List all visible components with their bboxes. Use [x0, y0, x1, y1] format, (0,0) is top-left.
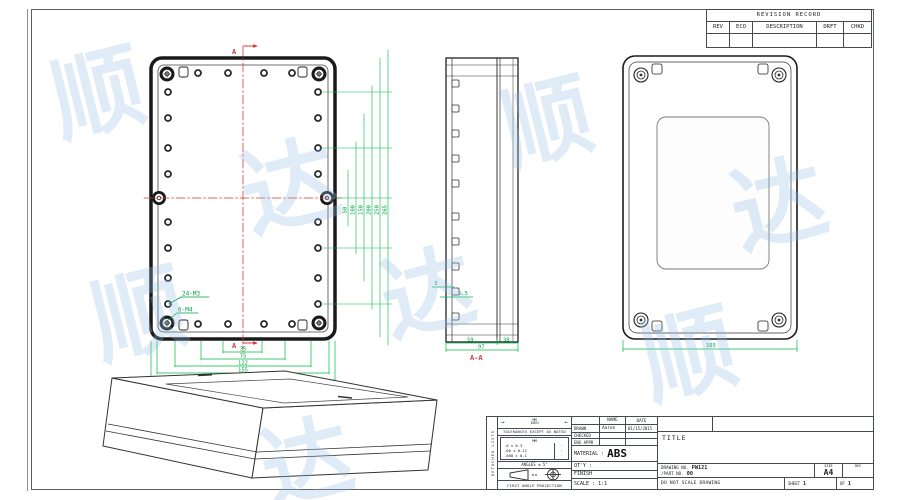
sheet-label: SHEET [788, 481, 800, 486]
front-view: A A 24-M3 6-M4 [144, 44, 392, 381]
back-recess-panel [657, 117, 769, 269]
checked-date [626, 433, 657, 439]
scale-label: SCALE : 1:1 [572, 479, 657, 489]
finish-label: FINISH [572, 471, 657, 480]
dim-arrow-right-icon: → [501, 419, 505, 426]
target-symbol-icon [544, 468, 562, 481]
title-block-top-strip [658, 417, 873, 432]
drawing-number-cell: DRAWING NO. PW121 /PART NO. 00 [658, 464, 815, 477]
drft-empty-cell [817, 34, 844, 47]
eng-appr-label: ENG APPR [572, 439, 600, 445]
tolerance-row-3: .000 ± 0.1 [501, 453, 554, 458]
projection-symbols [498, 469, 571, 481]
eng-appr-date [626, 439, 657, 445]
of-number: 1 [848, 481, 851, 487]
vdim-150: 150 [359, 205, 365, 215]
side-strip-label: DETACHED LISTS [490, 430, 495, 476]
tolerance-column: → MM INCH ← TOLERANCES EXCEPT AS NOTED M… [498, 417, 572, 489]
callout-6-m4-label: 6-M4 [178, 307, 193, 314]
side-section-view: 3 5.5 59 38 97 A-A [432, 58, 518, 362]
of-cell: OF 1 [837, 478, 873, 489]
revision-table-title: REVISION RECORD [707, 10, 871, 21]
title-column: TITLE DRAWING NO. PW121 /PART NO. 00 SIZ… [658, 417, 873, 489]
name-header: NAME [600, 417, 626, 424]
section-label-bottom: A [232, 342, 237, 350]
vdim-100: 100 [351, 205, 357, 215]
approval-blank-header [572, 417, 600, 424]
section-marker-top: A [232, 44, 258, 56]
approvals-column: NAME DATE DRAWN Aaron 01/15/2015 CHECKED… [572, 417, 658, 489]
back-view: 165 [623, 56, 797, 352]
material-value: ABS [607, 447, 627, 460]
do-not-scale-note: DO NOT SCALE DRAWING [658, 478, 785, 489]
eco-col-header: ECO [730, 22, 753, 33]
rev-label: REV [855, 464, 861, 468]
eco-empty-cell [730, 34, 753, 47]
part-no-label: /PART NO. [661, 471, 684, 477]
dim-arrow-left-icon: ← [564, 419, 568, 426]
of-label: OF [840, 481, 845, 486]
drft-col-header: DRFT [817, 22, 844, 33]
eng-appr-name [600, 439, 626, 445]
tolerance-note: TOLERANCES EXCEPT AS NOTED [498, 429, 571, 437]
top-strip-cell [658, 417, 713, 431]
vdim-265: 265 [383, 205, 389, 215]
drawn-label: DRAWN [572, 425, 600, 432]
title-block: DETACHED LISTS → MM INCH ← TOLERANCES EX… [486, 416, 874, 490]
dim-97: 97 [478, 345, 485, 351]
date-header: DATE [626, 417, 657, 424]
dim-35: 35 [240, 347, 247, 353]
material-label: MATERIAL : [574, 451, 604, 457]
rev-empty-cell [707, 34, 730, 47]
qty-label: QT'Y : [572, 462, 657, 471]
dim-5-5: 5.5 [458, 291, 468, 297]
checked-label: CHECKED [572, 433, 600, 439]
tolerance-table: MM .0 ± 0.3· .00 ± 0.12· .000 ± 0.1· [498, 436, 571, 461]
section-aa-label: A-A [470, 354, 483, 362]
back-width-dim: 165 [623, 340, 797, 352]
description-empty-cell [753, 34, 817, 47]
title-block-side-strip: DETACHED LISTS [487, 417, 498, 489]
sheet-cell: SHEET 1 [785, 478, 837, 489]
dim-122: 122 [238, 361, 248, 367]
drawn-date: 01/15/2015 [626, 425, 657, 432]
callout-24-m3-label: 24-M3 [182, 291, 200, 298]
dim-59: 59 [467, 338, 474, 344]
vdim-250: 250 [375, 205, 381, 215]
dim-75: 75 [240, 354, 247, 360]
vdim-50: 50 [343, 207, 349, 214]
dim-3: 3 [434, 281, 437, 287]
dim-38: 38 [503, 338, 510, 344]
drawing-sheet: A A 24-M3 6-M4 [0, 0, 900, 500]
units-secondary: INCH [530, 422, 538, 426]
title-label: TITLE [658, 432, 873, 465]
tolerance-mark-3: · [554, 453, 568, 458]
vdim-200: 200 [367, 205, 373, 215]
section-label-top: A [232, 48, 237, 56]
part-no-value: 00 [687, 471, 693, 477]
revision-table: REVISION RECORD REV ECO DESCRIPTION DRFT… [706, 9, 872, 48]
dim-165-back: 165 [706, 343, 716, 349]
rev-cell: REV [843, 464, 873, 477]
chkd-col-header: CHKD [844, 22, 871, 33]
checked-name [600, 433, 626, 439]
rev-col-header: REV [707, 22, 730, 33]
description-col-header: DESCRIPTION [753, 22, 817, 33]
sheet-number: 1 [803, 481, 806, 487]
drawn-name: Aaron [600, 425, 626, 432]
isometric-view [103, 371, 437, 478]
chkd-empty-cell [844, 34, 871, 47]
projection-label: FIRST ANGLE PROJECTION [498, 481, 571, 489]
size-cell: SIZE A4 [815, 464, 843, 477]
size-value: A4 [824, 468, 834, 477]
cone-symbol-icon [508, 469, 538, 481]
